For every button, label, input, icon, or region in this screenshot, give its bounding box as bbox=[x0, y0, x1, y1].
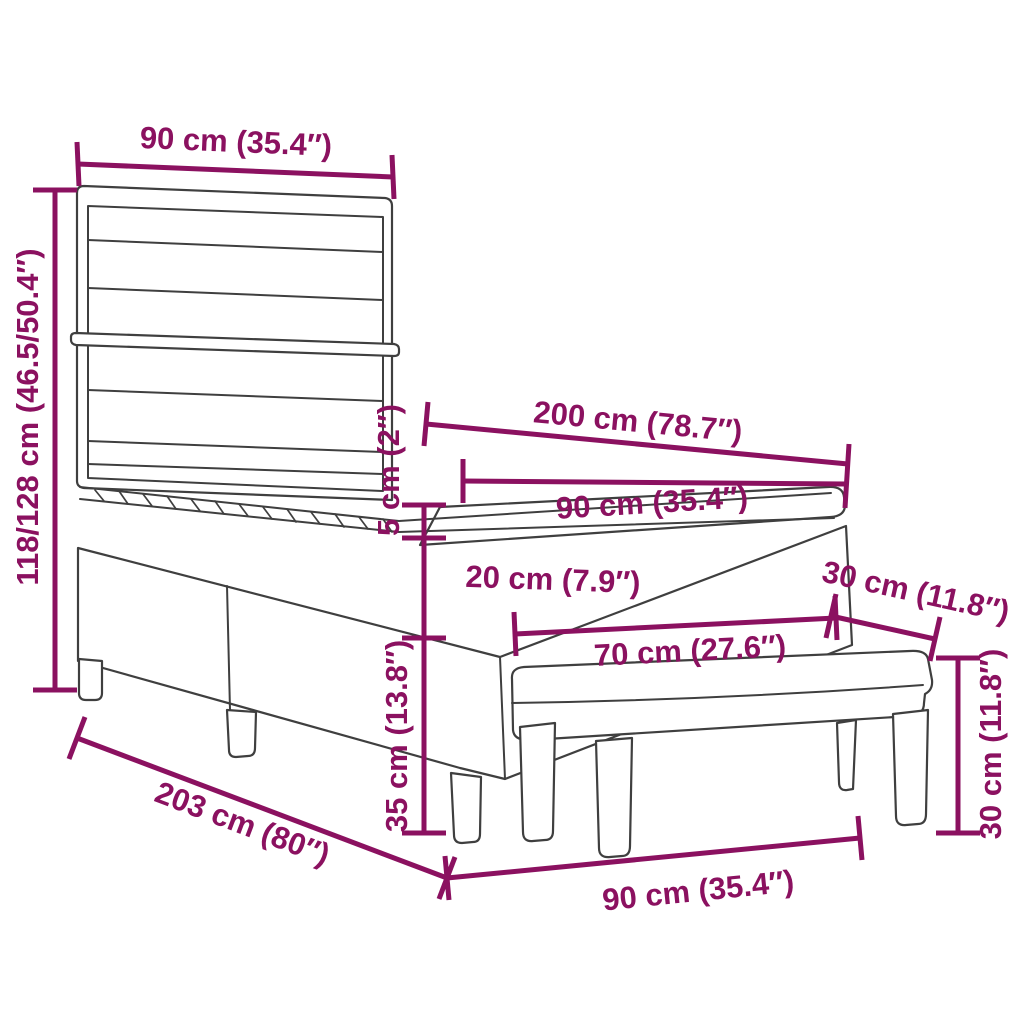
headboard bbox=[71, 186, 399, 500]
bench-leg-front-right bbox=[893, 710, 928, 825]
bed-leg bbox=[451, 773, 481, 843]
dim-headboard-height: 118/128 cm (46.5/50.4″) bbox=[10, 190, 77, 690]
dimension-diagram: 90 cm (35.4″) 118/128 cm (46.5/50.4″) 20… bbox=[0, 0, 1024, 1024]
dim-label-bed-width: 90 cm (35.4″) bbox=[601, 863, 796, 917]
dim-label-topper-thickness: 5 cm (2″) bbox=[371, 404, 406, 536]
dim-label-headboard-width: 90 cm (35.4″) bbox=[139, 120, 333, 163]
dim-bench-height: 30 cm (11.8″) bbox=[936, 649, 1008, 840]
bed-leg bbox=[79, 659, 102, 700]
dim-label-headboard-height: 118/128 cm (46.5/50.4″) bbox=[10, 248, 45, 585]
bench-leg-back-left bbox=[596, 738, 632, 857]
dim-label-mattress-length: 200 cm (78.7″) bbox=[532, 394, 744, 449]
bench-leg-back-right bbox=[837, 720, 856, 790]
dim-label-bench-height: 30 cm (11.8″) bbox=[973, 649, 1008, 840]
dim-label-frame-height: 35 cm (13.8″) bbox=[379, 640, 414, 832]
dim-bed-width: 90 cm (35.4″) bbox=[445, 816, 862, 918]
diagram-canvas: 90 cm (35.4″) 118/128 cm (46.5/50.4″) 20… bbox=[0, 0, 1024, 1024]
bed-leg bbox=[227, 710, 256, 757]
bench bbox=[512, 651, 932, 857]
dim-label-mattress-thickness: 20 cm (7.9″) bbox=[465, 559, 641, 600]
bench-leg-front-left bbox=[520, 723, 555, 841]
